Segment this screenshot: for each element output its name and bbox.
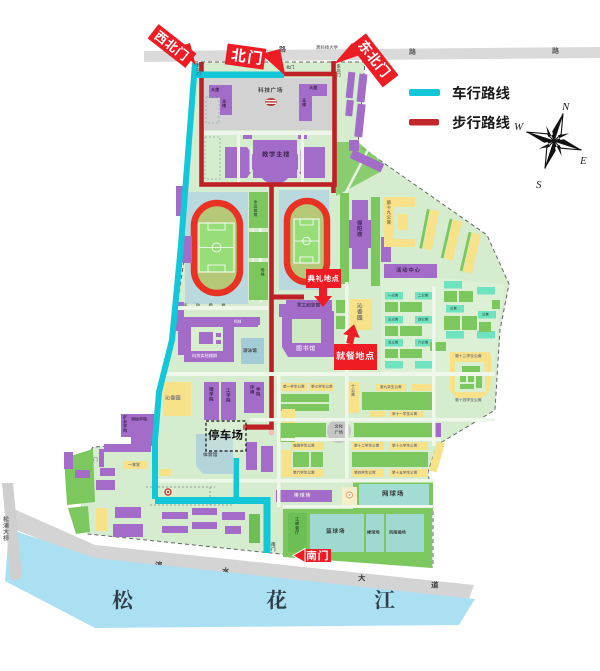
svg-text:N: N	[561, 101, 570, 113]
svg-text:S: S	[536, 179, 542, 191]
svg-text:W: W	[514, 121, 524, 133]
svg-text:E: E	[579, 155, 587, 167]
